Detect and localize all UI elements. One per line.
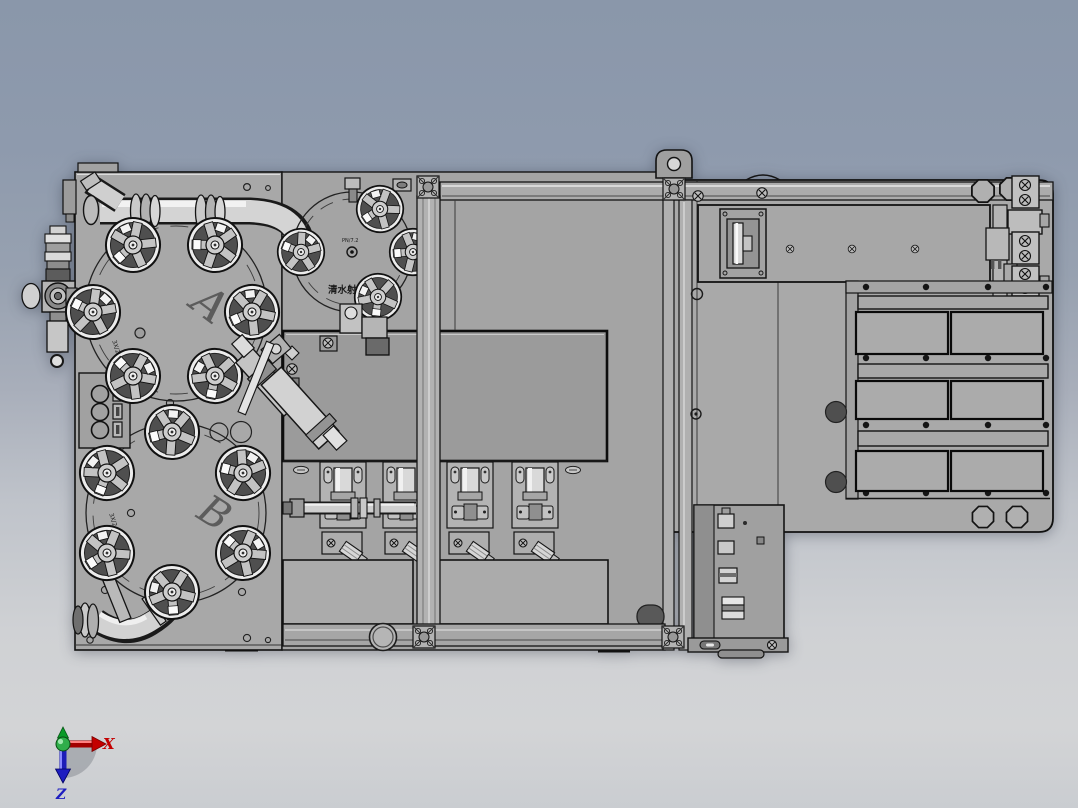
z-axis-label: Z (55, 787, 67, 803)
x-axis-label: X (102, 735, 116, 753)
trays (283, 560, 608, 624)
connector-box (688, 505, 788, 658)
cad-viewport[interactable]: A 3X/2.4 B 3X/2.4 (0, 0, 1078, 808)
dial-engraving-small: PN/7.2 (342, 238, 358, 244)
y-axis-stub (56, 727, 70, 751)
axis-triad: X Z (55, 727, 116, 803)
pressure-regulator (22, 226, 77, 367)
